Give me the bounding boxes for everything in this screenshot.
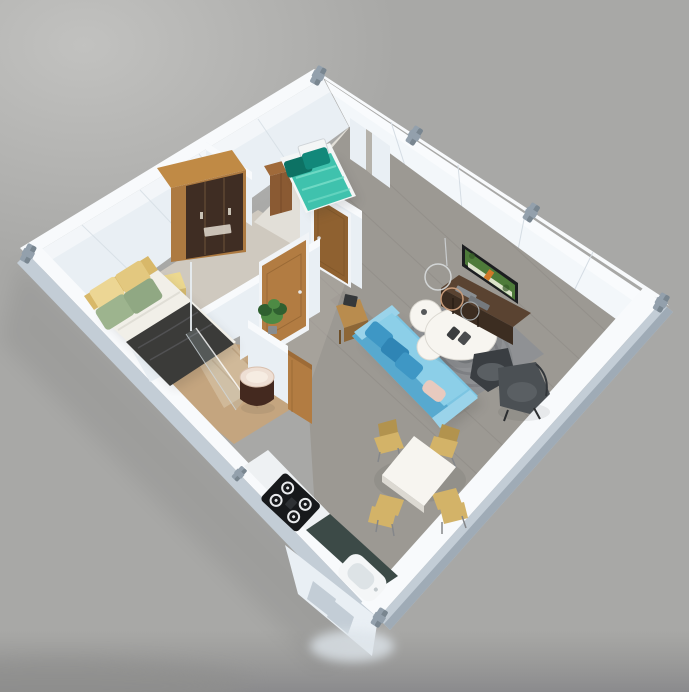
door-handle bbox=[298, 290, 302, 294]
wardrobe-doors bbox=[186, 173, 243, 259]
wardrobe-handle bbox=[228, 208, 231, 215]
plant-pot bbox=[268, 326, 277, 334]
wardrobe-handle bbox=[200, 212, 203, 219]
pedestal-basin bbox=[240, 367, 275, 414]
window-gap bbox=[366, 129, 372, 175]
table-decor bbox=[421, 309, 427, 315]
armchair-wingback bbox=[498, 362, 550, 421]
isometric-home-render bbox=[0, 0, 689, 692]
floorplan-render-image bbox=[0, 0, 689, 692]
base-glow bbox=[310, 630, 394, 662]
